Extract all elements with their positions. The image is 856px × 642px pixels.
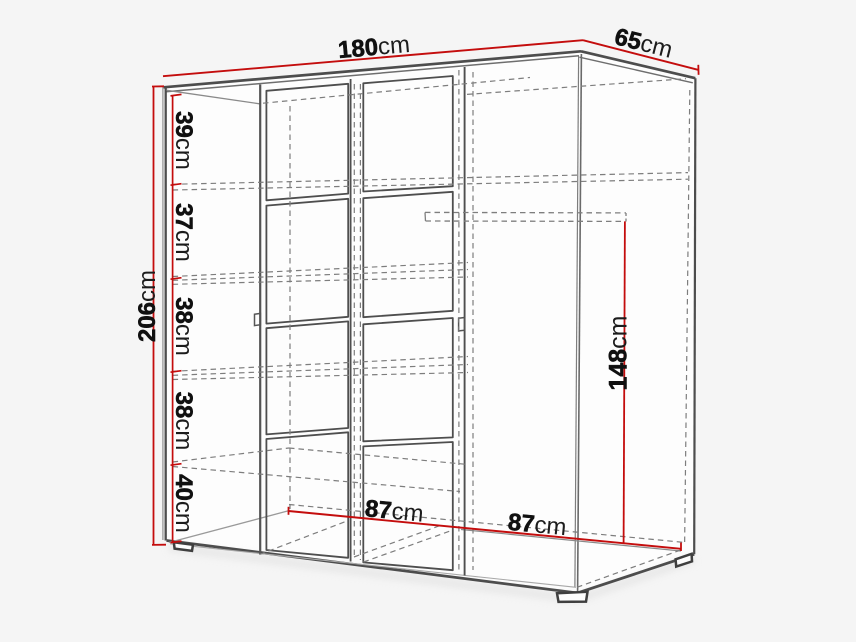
svg-text:87cm: 87cm bbox=[507, 509, 568, 542]
svg-text:38cm: 38cm bbox=[170, 392, 197, 451]
svg-text:39cm: 39cm bbox=[170, 111, 197, 170]
svg-text:148cm: 148cm bbox=[605, 315, 633, 390]
svg-text:38cm: 38cm bbox=[170, 297, 197, 356]
svg-text:87cm: 87cm bbox=[364, 495, 425, 528]
svg-text:206cm: 206cm bbox=[134, 270, 161, 342]
svg-text:37cm: 37cm bbox=[170, 203, 197, 262]
svg-text:40cm: 40cm bbox=[170, 474, 197, 533]
